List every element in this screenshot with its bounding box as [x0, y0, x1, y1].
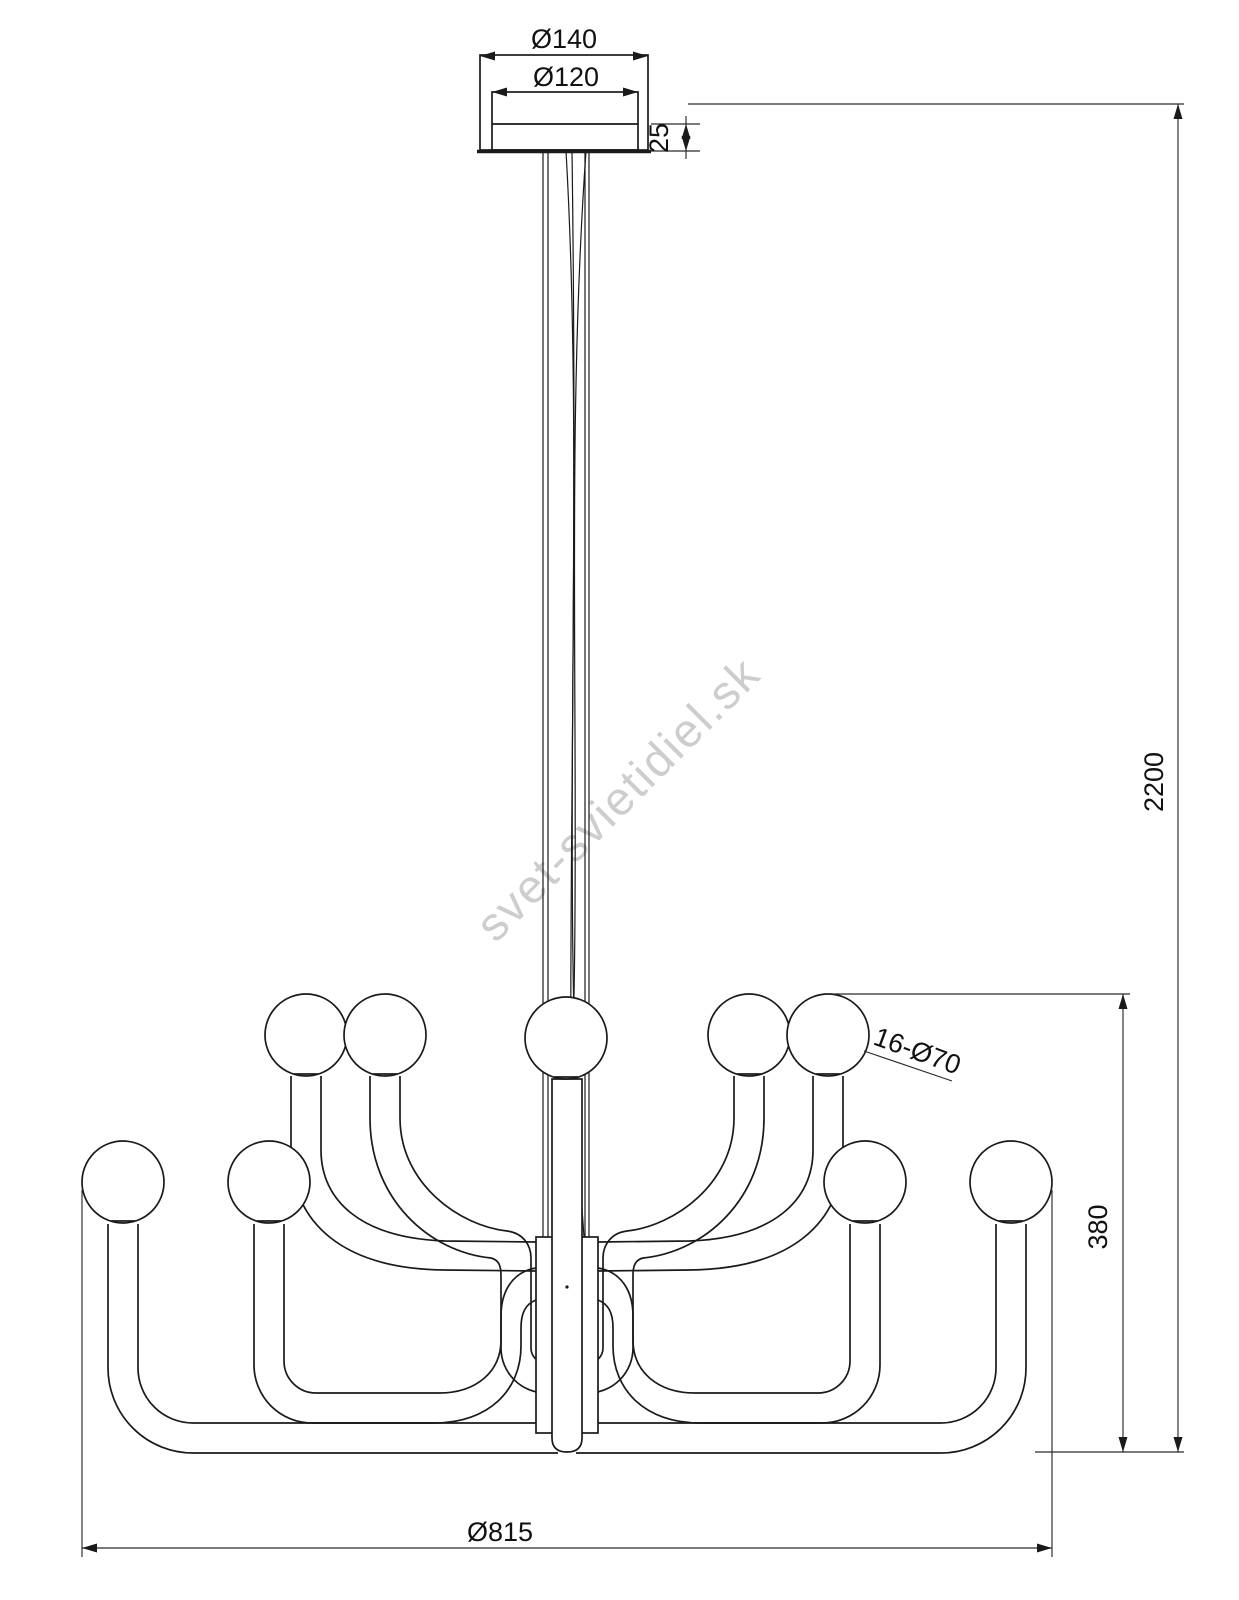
overall-height-label: 2200: [1139, 752, 1169, 812]
bulb: [228, 1141, 310, 1223]
canopy-inner-diameter-label: Ø120: [533, 62, 599, 92]
body-diameter-label: Ø815: [467, 1517, 533, 1547]
bulb: [970, 1141, 1052, 1223]
canopy-height-label: 25: [644, 123, 674, 153]
bulb-center: [525, 997, 607, 1079]
dimension-bulbs: 16-Ø70: [864, 1021, 965, 1081]
dimension-canopy-height: 25: [644, 116, 700, 159]
bulb: [265, 994, 347, 1076]
canopy-outer-diameter-label: Ø140: [531, 24, 597, 54]
technical-drawing-page: svet-svietidiel.sk: [0, 0, 1239, 1600]
bulb: [787, 994, 869, 1076]
bulb-count-diameter-label: 16-Ø70: [870, 1021, 965, 1080]
chandelier-dimension-drawing: svet-svietidiel.sk: [0, 0, 1239, 1600]
center-stem: [552, 1079, 582, 1452]
watermark-text: svet-svietidiel.sk: [465, 646, 770, 951]
bulb: [708, 994, 790, 1076]
bulb: [344, 994, 426, 1076]
bulb: [82, 1141, 164, 1223]
center-mark-dot: [565, 1285, 568, 1288]
arms-right: [560, 1076, 1026, 1453]
arms-left: [108, 1076, 574, 1453]
body-height-label: 380: [1083, 1204, 1113, 1249]
bulb: [824, 1141, 906, 1223]
